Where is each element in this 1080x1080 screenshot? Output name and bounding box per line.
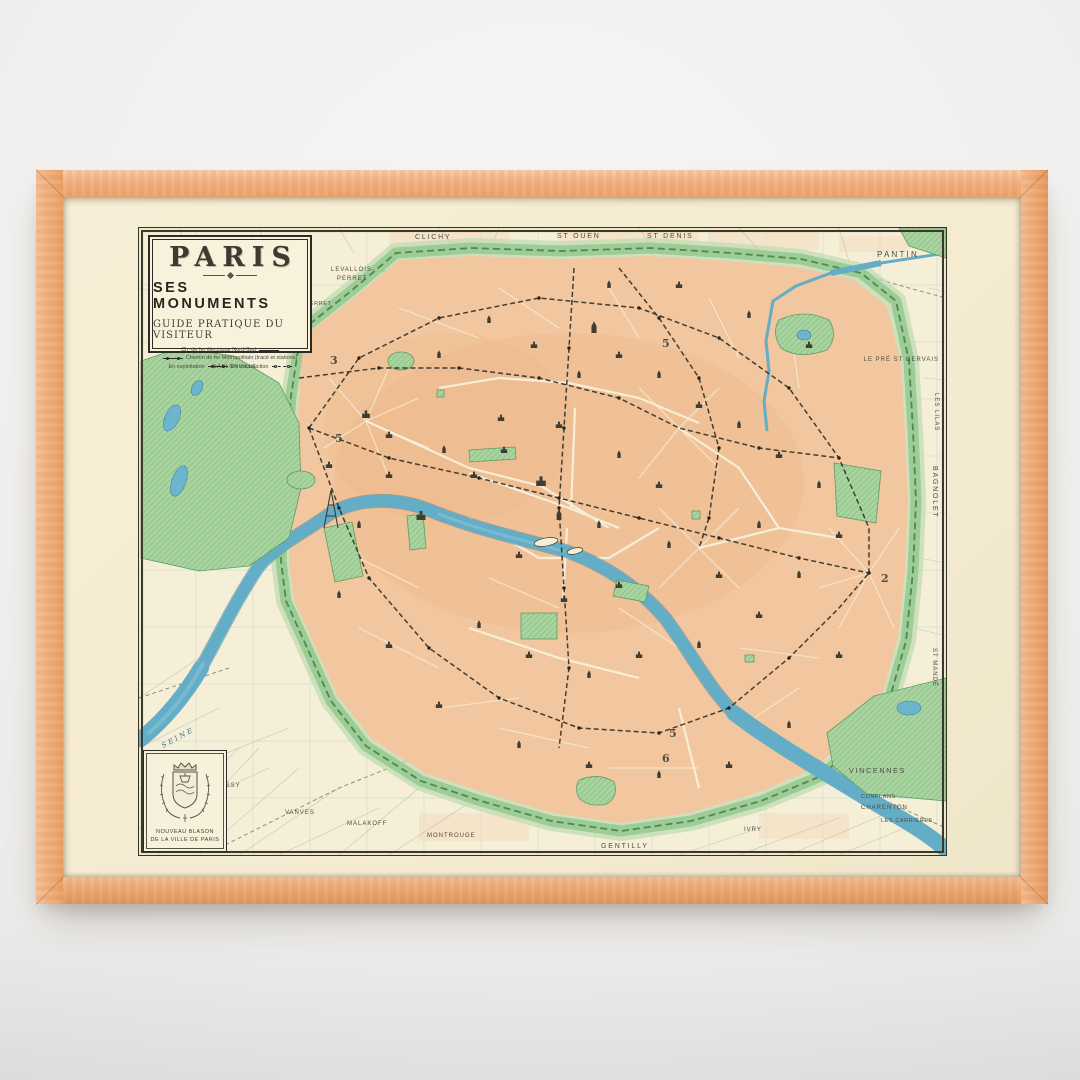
tuileries bbox=[469, 447, 516, 462]
crest-caption-2: DE LA VILLE DE PARIS bbox=[151, 836, 220, 844]
crest-caption-1: NOUVEAU BLASON bbox=[151, 828, 220, 836]
label-les-lilas: LES LILAS bbox=[933, 393, 939, 431]
parc-monceau bbox=[388, 352, 414, 370]
label-montrouge: MONTROUGE bbox=[427, 833, 476, 839]
line-number-3: 3 bbox=[330, 354, 338, 367]
label-ivry: IVRY bbox=[744, 827, 762, 833]
legend-line-sample bbox=[259, 350, 279, 351]
cartouche-inner-border: PARIS SES MONUMENTS GUIDE PRATIQUE DU VI… bbox=[152, 239, 308, 349]
paris-coat-of-arms bbox=[150, 756, 220, 828]
line-number-5: 5 bbox=[669, 727, 677, 740]
line-number-2: 2 bbox=[881, 572, 889, 585]
label-les-carrieres: LES CARRIÈRES bbox=[881, 817, 933, 824]
bois-de-boulogne bbox=[141, 348, 301, 571]
label-levallois-2: PERRET bbox=[337, 276, 367, 282]
label-bagnolet: BAGNOLET bbox=[931, 466, 938, 519]
label-conflans: CONFLANS bbox=[861, 794, 896, 800]
label-malakoff: MALAKOFF bbox=[347, 821, 387, 827]
luxembourg-garden bbox=[521, 613, 557, 639]
legend-metro-line-sample bbox=[163, 358, 183, 359]
label-charenton: CHARENTON bbox=[861, 805, 908, 811]
legend-metro-label: Chemin de fer Métropolitain (tracé et st… bbox=[186, 354, 298, 362]
map-title: PARIS bbox=[162, 244, 298, 271]
legend-electric-label: Ch. de fer électrique Nord-Sud bbox=[181, 346, 256, 354]
map-subtitle: SES MONUMENTS bbox=[153, 280, 307, 312]
label-le-pre-st-gervais: LE PRÉ ST GERVAIS bbox=[864, 356, 939, 363]
label-pantin: PANTIN bbox=[877, 250, 919, 259]
map-tagline: GUIDE PRATIQUE DU VISITEUR bbox=[153, 319, 307, 341]
label-st-ouen: ST OUEN bbox=[557, 233, 601, 240]
label-vincennes: VINCENNES bbox=[849, 768, 906, 775]
map-print-border: CLICHY ST OUEN ST DENIS PANTIN LE PRÉ ST… bbox=[138, 227, 947, 856]
parc-montsouris bbox=[577, 776, 616, 805]
frame-wood-right bbox=[1021, 170, 1048, 904]
label-st-denis: ST DENIS bbox=[647, 233, 694, 240]
city-crest-box: NOUVEAU BLASON DE LA VILLE DE PARIS bbox=[143, 750, 227, 852]
label-st-mande: ST MANDÉ bbox=[931, 648, 938, 687]
map-legend: Ch. de fer électrique Nord-Sud Chemin de… bbox=[156, 346, 304, 371]
legend-construction-sample bbox=[272, 366, 292, 367]
map-sheet: CLICHY ST OUEN ST DENIS PANTIN LE PRÉ ST… bbox=[63, 197, 1021, 877]
label-levallois-1: LEVALLOIS- bbox=[331, 267, 375, 273]
line-number-6: 6 bbox=[662, 752, 670, 765]
picture-frame: CLICHY ST OUEN ST DENIS PANTIN LE PRÉ ST… bbox=[36, 170, 1048, 904]
legend-exploitation-label: En exploitation bbox=[168, 363, 204, 371]
frame-wood-bottom bbox=[36, 877, 1048, 904]
line-number-5: 5 bbox=[335, 432, 343, 445]
line-number-5: 5 bbox=[662, 337, 670, 350]
legend-construction-label: En construction bbox=[231, 363, 269, 371]
legend-exploitation-sample bbox=[208, 366, 228, 367]
label-gentilly: GENTILLY bbox=[601, 843, 649, 850]
pere-lachaise bbox=[834, 463, 881, 523]
frame-wood-top bbox=[36, 170, 1048, 197]
title-cartouche: PARIS SES MONUMENTS GUIDE PRATIQUE DU VI… bbox=[148, 235, 312, 353]
ornament-divider bbox=[203, 273, 257, 278]
wall: CLICHY ST OUEN ST DENIS PANTIN LE PRÉ ST… bbox=[0, 0, 1080, 1080]
label-clichy: CLICHY bbox=[415, 234, 451, 241]
crest-inner-border: NOUVEAU BLASON DE LA VILLE DE PARIS bbox=[146, 753, 224, 849]
frame-wood-left bbox=[36, 170, 63, 904]
label-vanves: VANVES bbox=[285, 810, 315, 816]
